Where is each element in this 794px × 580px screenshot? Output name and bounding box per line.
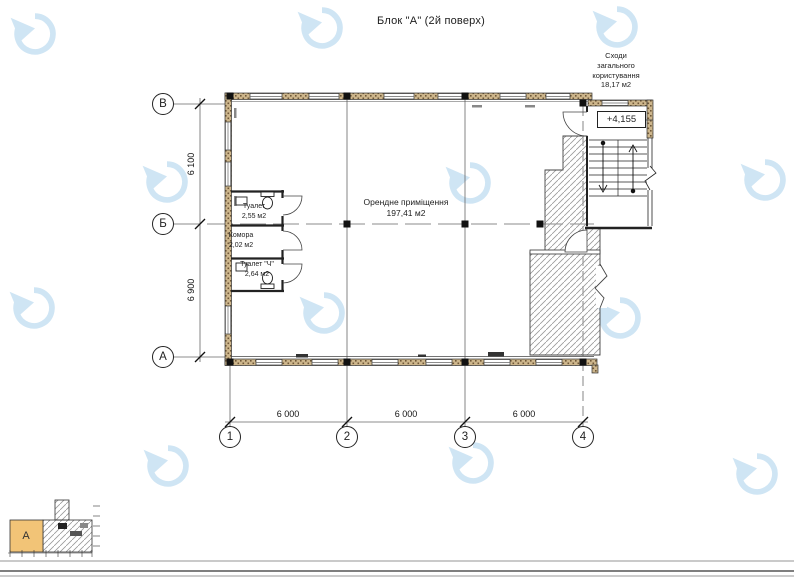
dimension-horizontal-1: 6 000 bbox=[277, 409, 300, 419]
stairwell-label-line: Сходи bbox=[592, 51, 639, 61]
hatched-area bbox=[530, 136, 607, 355]
key-plan-drawing bbox=[8, 500, 100, 557]
room-name: Туалет bbox=[242, 202, 266, 212]
axis-row-v: В bbox=[152, 93, 174, 115]
axis-col-4: 4 bbox=[572, 426, 594, 448]
dimension-horizontal-2: 6 000 bbox=[395, 409, 418, 419]
storage-label: Комора 2,02 м2 bbox=[229, 231, 253, 251]
stairwell-label-line: користування bbox=[592, 71, 639, 81]
floor-plan-drawing bbox=[0, 0, 794, 580]
elevation-value: +4,155 bbox=[607, 114, 636, 125]
axis-col-2: 2 bbox=[336, 426, 358, 448]
elevation-mark: +4,155 bbox=[597, 111, 646, 128]
door-swing-arc bbox=[563, 112, 587, 136]
brand-watermark-icon bbox=[733, 456, 775, 492]
brand-watermark-layer bbox=[10, 9, 783, 492]
brand-watermark-icon bbox=[10, 290, 52, 326]
brand-watermark-icon bbox=[11, 16, 53, 52]
stairwell-label-line: загального bbox=[592, 61, 639, 71]
room-name: Орендне приміщення bbox=[364, 197, 449, 208]
brand-watermark-icon bbox=[449, 445, 491, 481]
brand-watermark-icon bbox=[593, 9, 635, 45]
toilet-fixture bbox=[261, 284, 274, 289]
room-area: 2,02 м2 bbox=[229, 241, 253, 251]
dimension-vertical-1: 6 100 bbox=[186, 153, 196, 176]
toilet-fixture bbox=[261, 192, 274, 197]
brand-watermark-icon bbox=[144, 448, 186, 484]
room-area: 2,55 м2 bbox=[242, 212, 266, 222]
door-swing-arc bbox=[283, 196, 302, 283]
axis-col-3: 3 bbox=[454, 426, 476, 448]
room-name: Туалет "Ч" bbox=[240, 260, 274, 270]
brand-watermark-icon bbox=[300, 295, 342, 331]
stairwell-area: 18,17 м2 bbox=[592, 80, 639, 90]
brand-watermark-icon bbox=[741, 162, 783, 198]
wall-detail-marks bbox=[234, 105, 535, 358]
break-line-zigzag bbox=[645, 166, 656, 190]
room-area: 197,41 м2 bbox=[364, 208, 449, 219]
axis-row-a: А bbox=[152, 346, 174, 368]
brand-watermark-icon bbox=[446, 165, 488, 201]
toilet-top-label: Туалет 2,55 м2 bbox=[242, 202, 266, 222]
main-room-label: Орендне приміщення 197,41 м2 bbox=[364, 197, 449, 219]
dimension-horizontal-3: 6 000 bbox=[513, 409, 536, 419]
toilet-bottom-label: Туалет "Ч" 2,64 м2 bbox=[240, 260, 274, 280]
room-area: 2,64 м2 bbox=[240, 270, 274, 280]
blueprint-page: Блок "А" (2й поверх) Сходи загального ко… bbox=[0, 0, 794, 580]
brand-watermark-icon bbox=[143, 164, 185, 200]
room-name: Комора bbox=[229, 231, 253, 241]
axis-row-b: Б bbox=[152, 213, 174, 235]
key-plan-block-label: А bbox=[22, 530, 29, 542]
stair-treads bbox=[589, 140, 647, 196]
page-title: Блок "А" (2й поверх) bbox=[377, 15, 485, 27]
page-edge-lines bbox=[0, 561, 794, 576]
axis-col-1: 1 bbox=[219, 426, 241, 448]
brand-watermark-icon bbox=[298, 10, 340, 46]
dimension-vertical-2: 6 900 bbox=[186, 279, 196, 302]
stairwell-label: Сходи загального користування 18,17 м2 bbox=[592, 51, 639, 90]
